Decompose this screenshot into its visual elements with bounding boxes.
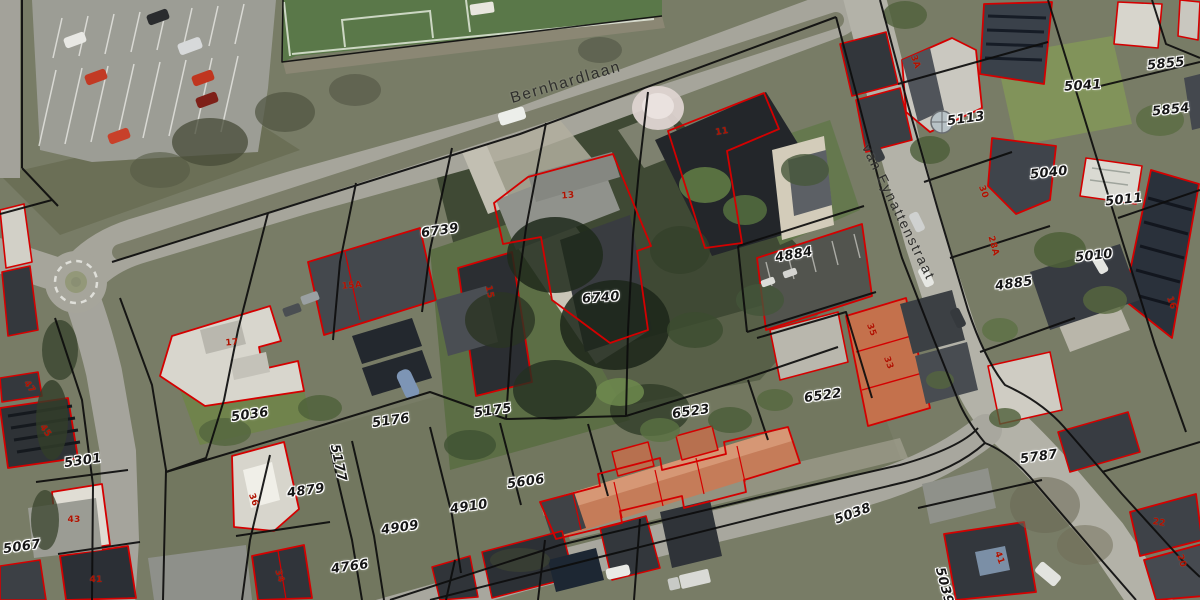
roundabout: [45, 251, 107, 313]
aerial-map-canvas: [0, 0, 1200, 600]
cadastral-map-viewport[interactable]: Bernhardlaanvan Eynattenstraat6739674048…: [0, 0, 1200, 600]
road-top-left: [0, 0, 20, 178]
